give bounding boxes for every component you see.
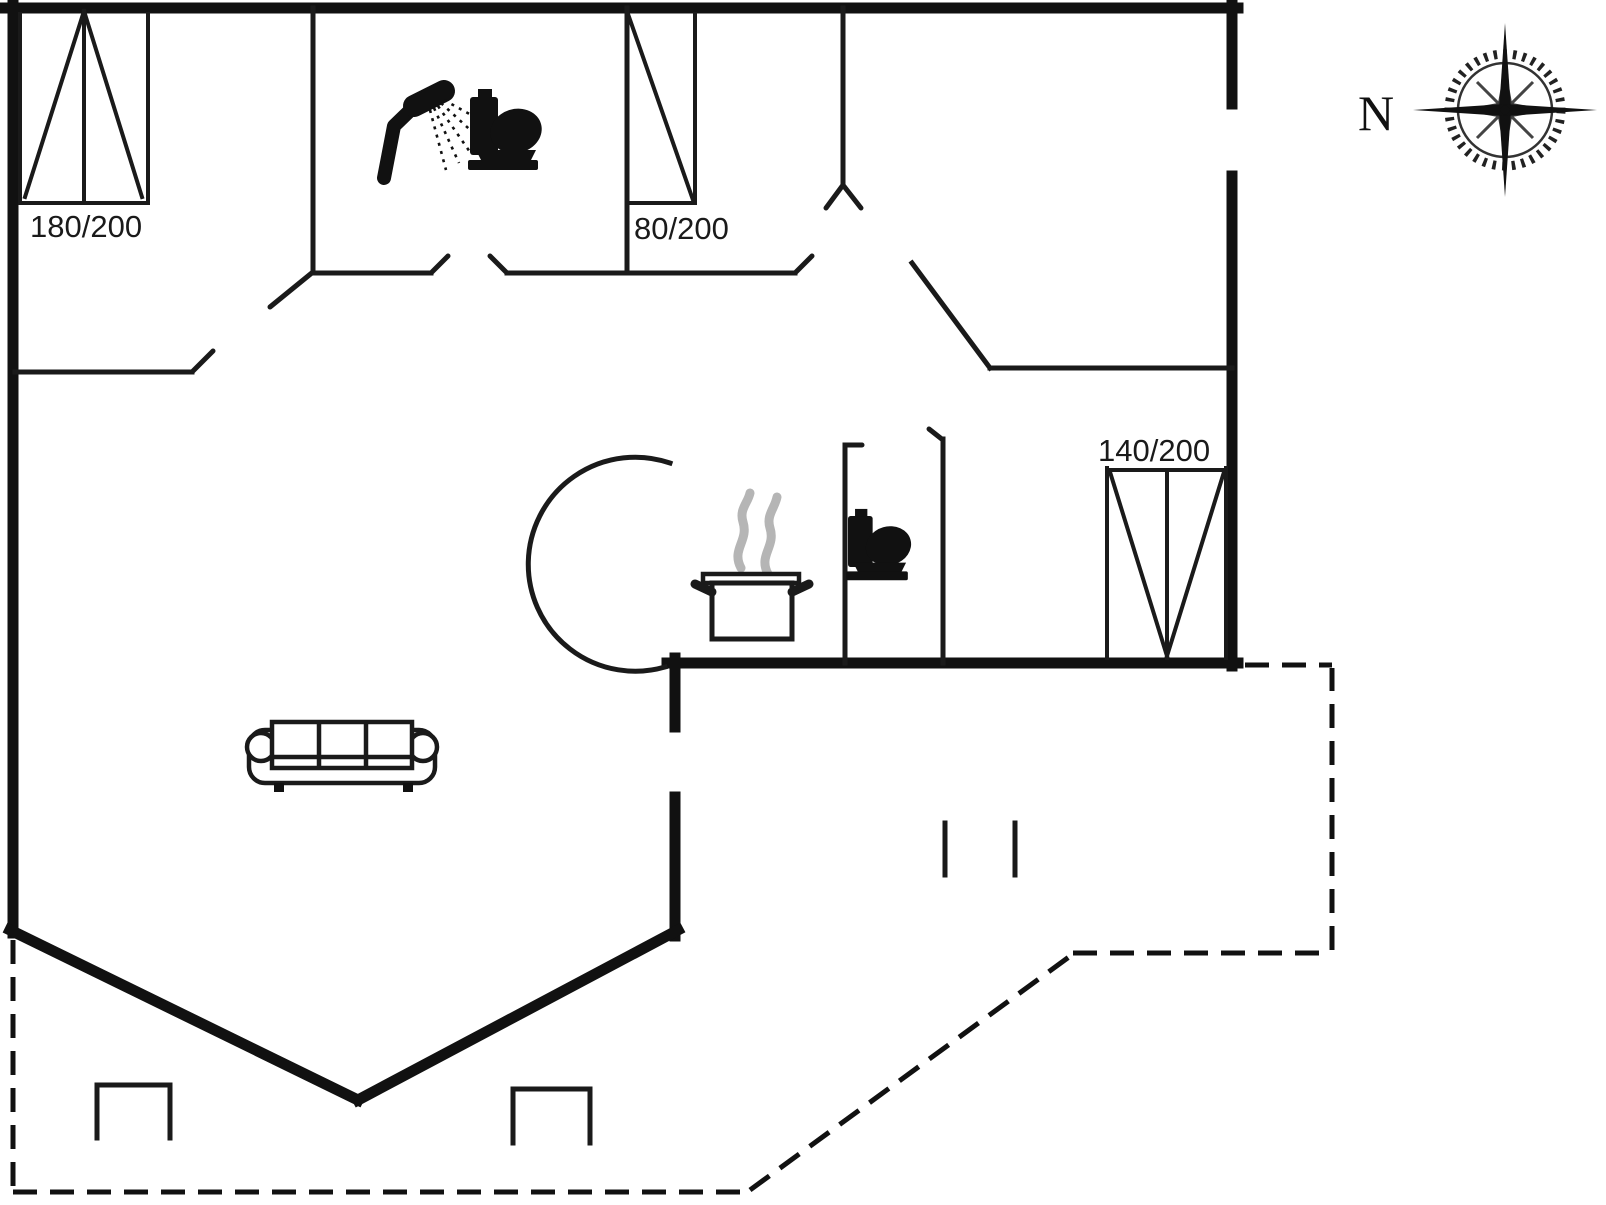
steam-squiggle xyxy=(765,497,777,574)
door-tick xyxy=(192,351,213,372)
door-tick xyxy=(431,256,448,273)
terrace-diagonal-edge xyxy=(750,954,1073,1190)
sofa-icon xyxy=(247,722,437,792)
door-tick xyxy=(826,185,843,208)
floorplan-svg: 180/200 80/200 140/200 N xyxy=(0,0,1606,1205)
window-label-80-200: 80/200 xyxy=(634,211,729,246)
wall-bay-diagonal-left xyxy=(10,930,358,1100)
outer-walls xyxy=(3,3,1238,1100)
toilet-icon xyxy=(468,89,547,170)
interior-walls xyxy=(15,8,1232,671)
window-180x200 xyxy=(20,11,148,203)
door-swing-arc xyxy=(528,457,670,671)
door-tick xyxy=(929,429,943,440)
window-140x200 xyxy=(1107,468,1226,658)
toilet-icon xyxy=(846,509,916,580)
window-label-180-200: 180/200 xyxy=(30,209,142,244)
post-middle xyxy=(513,1089,590,1143)
door-tick xyxy=(490,256,507,273)
door-tick xyxy=(795,256,812,273)
window-label-140-200: 140/200 xyxy=(1098,433,1210,468)
compass-rose-icon xyxy=(1413,23,1597,197)
floorplan-page: 180/200 80/200 140/200 N xyxy=(0,0,1606,1205)
window-80x200 xyxy=(627,14,695,203)
wall-bay-diagonal-right xyxy=(358,930,678,1100)
steam-squiggle xyxy=(738,493,750,568)
door-leaf-entry xyxy=(912,263,990,368)
compass-north-label: N xyxy=(1358,85,1394,141)
cooking-pot-icon xyxy=(695,493,809,639)
door-tick xyxy=(843,185,861,208)
labels: 180/200 80/200 140/200 N xyxy=(30,85,1394,468)
post-left xyxy=(97,1085,170,1138)
door-tick xyxy=(270,272,313,307)
